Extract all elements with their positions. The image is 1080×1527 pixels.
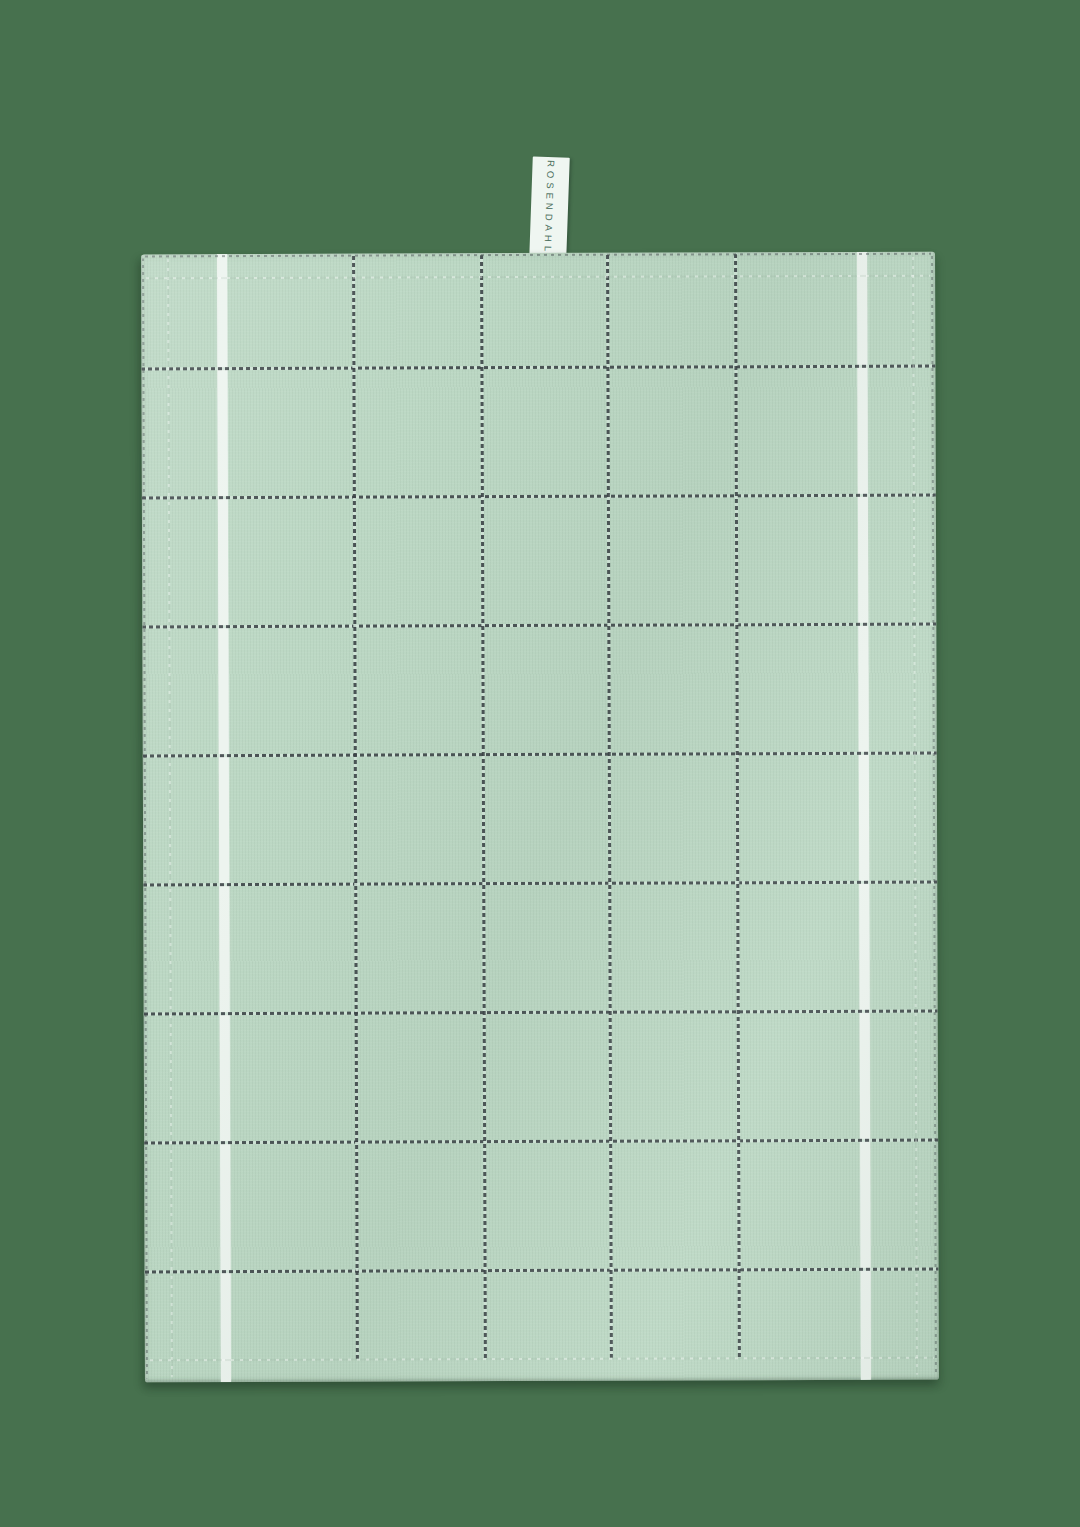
product-photo-scene: ROSENDAHL (0, 0, 1080, 1527)
brand-label-tag: ROSENDAHL (529, 156, 570, 259)
tea-towel (141, 252, 939, 1383)
brand-label-text: ROSENDAHL (542, 160, 556, 255)
fabric-sheen-overlay (141, 252, 939, 1383)
